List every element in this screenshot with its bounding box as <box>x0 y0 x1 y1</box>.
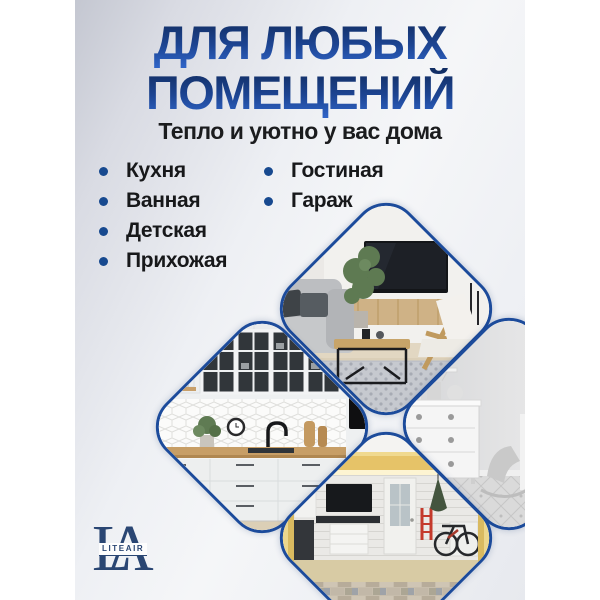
bullet-icon <box>264 197 273 206</box>
bullet-icon <box>99 227 108 236</box>
crib <box>520 414 525 498</box>
list-item: Гостиная <box>264 156 384 186</box>
bullet-icon <box>99 197 108 206</box>
list-item: Кухня <box>99 156 227 186</box>
countertop <box>144 447 346 458</box>
room-label: Детская <box>126 219 207 243</box>
garage-tv <box>326 484 372 512</box>
room-label: Гостиная <box>291 159 384 183</box>
room-label: Кухня <box>126 159 186 183</box>
brand-logo: L A LITEAIR <box>92 516 172 588</box>
hexagon-backsplash <box>144 399 346 449</box>
room-list-left: Кухня Ванная Детская Прихожая <box>99 156 227 276</box>
subtitle: Тепло и уютно у вас дома <box>75 118 525 145</box>
room-label: Прихожая <box>126 249 227 273</box>
logo-wordmark: LITEAIR <box>99 543 147 556</box>
bullet-icon <box>99 257 108 266</box>
wall-clock <box>228 419 244 435</box>
list-item: Детская <box>99 216 227 246</box>
product-infographic: ДЛЯ ЛЮБЫХ ПОМЕЩЕНИЙ Тепло и уютно у вас … <box>0 0 600 600</box>
room-label: Ванная <box>126 189 200 213</box>
open-shelves <box>146 349 196 391</box>
page-title: ДЛЯ ЛЮБЫХ ПОМЕЩЕНИЙ <box>75 18 525 118</box>
list-item: Прихожая <box>99 246 227 276</box>
title-line-1: ДЛЯ ЛЮБЫХ <box>75 18 525 68</box>
bullet-icon <box>99 167 108 176</box>
interior-floor <box>294 560 478 582</box>
paver-driveway <box>268 582 504 600</box>
room-list-right: Гостиная Гараж <box>264 156 384 216</box>
title-line-2: ПОМЕЩЕНИЙ <box>75 68 525 118</box>
bullet-icon <box>264 167 273 176</box>
poster-background: ДЛЯ ЛЮБЫХ ПОМЕЩЕНИЙ Тепло и уютно у вас … <box>75 0 525 600</box>
door <box>384 478 416 554</box>
list-item: Ванная <box>99 186 227 216</box>
room-label: Гараж <box>291 189 352 213</box>
